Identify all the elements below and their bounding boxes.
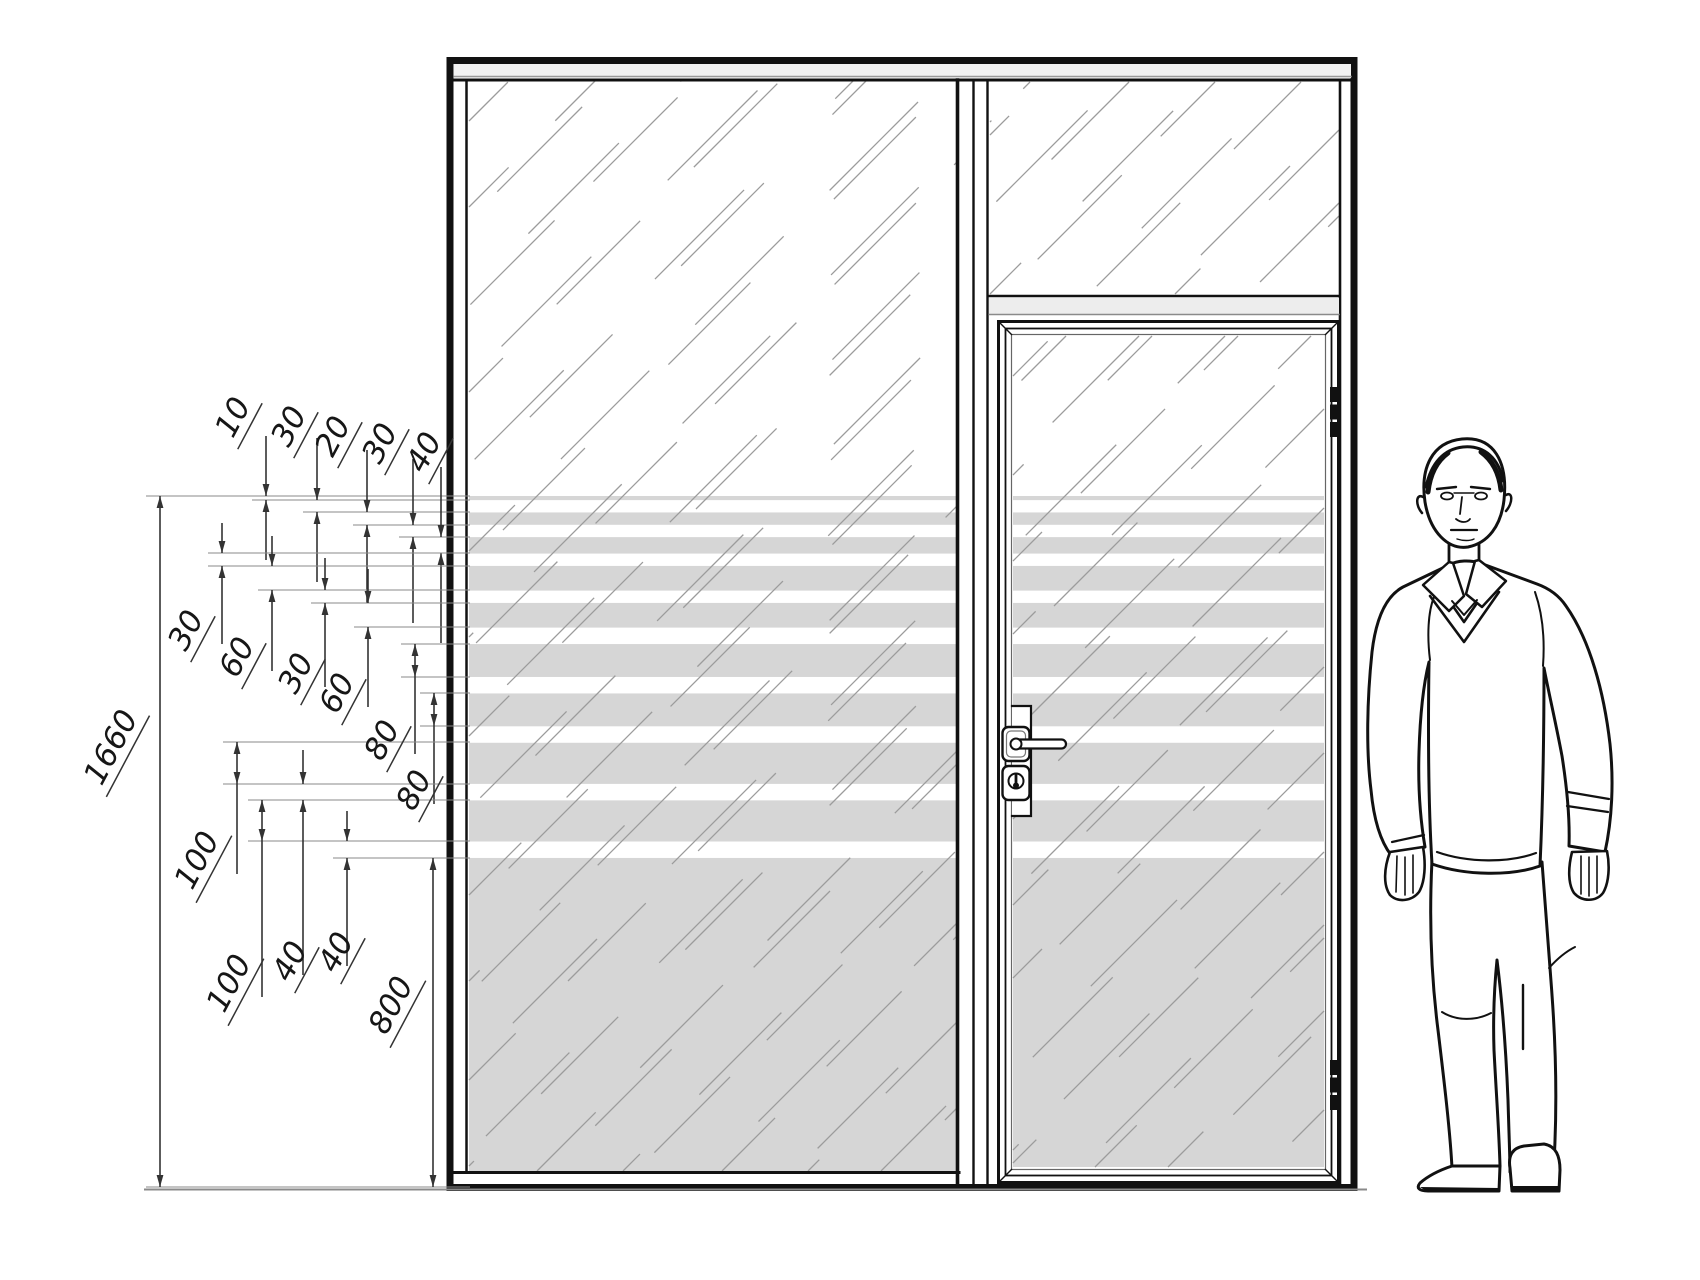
dimension-arrow	[431, 714, 438, 726]
glass-hatch-line	[469, 81, 939, 551]
figure-sweater	[1368, 561, 1612, 873]
drawing-canvas: 1660 10 30 20 30 40 30 60 30 60 80 80 10…	[0, 0, 1700, 1280]
glass-hatch-line	[469, 81, 866, 478]
dimension-arrow	[364, 500, 371, 512]
door-hinge-knuckle	[1330, 1060, 1339, 1075]
glass-hatch-line	[1003, 82, 1215, 294]
dimension-arrow	[300, 800, 307, 812]
frosted-film-stripe	[469, 537, 957, 553]
dimension-arrow	[412, 644, 419, 656]
dimension-arrow	[259, 800, 266, 812]
glass-hatch-line	[469, 81, 952, 564]
glass-hatch-line	[990, 82, 1116, 208]
dimension-label: 80	[389, 764, 439, 816]
glass-hatch-line	[469, 321, 957, 809]
dimension-arrow	[344, 858, 351, 870]
dimension-arrow	[234, 742, 241, 754]
door-handle-hub	[1011, 739, 1022, 750]
dimension-arrow	[365, 591, 372, 603]
dimension-arrow	[322, 603, 329, 615]
dimension-arrow	[314, 488, 321, 500]
glass-hatch-line	[1013, 336, 1324, 647]
dimension-arrow	[219, 566, 226, 578]
dimension-label-overall: 1660	[77, 704, 146, 791]
frosted-film-stripe	[1013, 603, 1324, 628]
glass-hatch-line	[469, 81, 522, 134]
glass-hatch-line	[469, 81, 595, 207]
dimension-arrow	[219, 541, 226, 553]
glass-hatch-line	[1076, 82, 1288, 294]
glass-hatch-line	[469, 81, 767, 379]
frosted-film-stripe	[469, 858, 957, 1171]
dimension-arrow	[263, 500, 270, 512]
glass-hatch-line	[469, 81, 780, 392]
glass-hatch-line	[1013, 336, 1053, 376]
glass-hatch-line	[1162, 117, 1339, 294]
dimension-arrow	[410, 513, 417, 525]
glass-hatch-line	[1013, 336, 1066, 389]
glass-hatch-line	[469, 81, 608, 220]
glass-hatch-line	[1261, 216, 1339, 294]
dimension-arrow	[431, 693, 438, 705]
dimension-arrow	[234, 772, 241, 784]
glass-hatch-line	[990, 82, 1030, 122]
dimension-arrow	[410, 537, 417, 549]
glass-hatch-line	[1175, 130, 1339, 294]
dimension-arrow	[259, 829, 266, 841]
glass-hatch-line	[990, 82, 1202, 294]
frosted-film-stripe	[1013, 566, 1324, 591]
glass-hatch-line	[1248, 203, 1339, 294]
glass-hatch-line	[469, 81, 853, 465]
glass-hatch-line	[1013, 336, 1139, 462]
dimension-arrow	[365, 627, 372, 639]
glass-hatch-line	[1013, 336, 1238, 561]
human-figure-for-scale	[1368, 439, 1612, 1191]
glass-hatch-line	[469, 81, 509, 121]
door-hinge-knuckle	[1330, 405, 1339, 420]
dimension-label: 30	[161, 604, 211, 656]
dimension-label: 10	[208, 391, 258, 443]
dimension-label: 30	[355, 417, 405, 469]
dimension-label: 30	[264, 400, 314, 452]
frosted-film-stripe	[1013, 800, 1324, 841]
dimension-label: 60	[312, 667, 362, 719]
frosted-film-stripe	[1013, 512, 1324, 524]
frosted-film-stripe	[1013, 644, 1324, 677]
dimension-arrow	[438, 525, 445, 537]
dimension-label: 80	[357, 714, 407, 766]
dimension-arrow	[364, 525, 371, 537]
frosted-film-stripe	[1013, 693, 1324, 726]
dimension-arrow	[430, 858, 437, 870]
glass-hatch-line	[469, 149, 957, 637]
frosted-film-stripe	[469, 512, 957, 524]
frosted-film-stripe	[1013, 496, 1324, 500]
frosted-film-stripe	[1013, 858, 1324, 1167]
dimension-arrow	[314, 512, 321, 524]
door-hinge-knuckle	[1330, 1078, 1339, 1093]
dimension-arrow	[344, 829, 351, 841]
transom-rail	[989, 298, 1339, 314]
dimension-arrow	[430, 1175, 437, 1187]
figure-knee-crease-right	[1549, 947, 1575, 968]
dimension-label: 60	[212, 631, 262, 683]
glass-hatch-line	[469, 81, 681, 293]
glass-hatch-line	[1013, 336, 1152, 475]
frosted-film-stripe	[469, 603, 957, 628]
door-lock-cylinder	[1013, 783, 1019, 789]
dimension-label: 30	[271, 647, 321, 699]
dimension-arrow	[322, 578, 329, 590]
dimension-label: 40	[311, 926, 361, 978]
dimension-labels: 1660 10 30 20 30 40 30 60 30 60 80 80 10…	[77, 391, 450, 1039]
frosted-film-stripe	[469, 496, 957, 500]
dimension-arrow	[438, 553, 445, 565]
glass-hatch-line	[990, 82, 1129, 221]
dimension-arrow	[263, 484, 270, 496]
glass-hatch-line	[990, 82, 1043, 135]
door-hinge-knuckle	[1330, 387, 1339, 402]
dimension-arrow	[300, 772, 307, 784]
door-hinge-knuckle	[1330, 1095, 1339, 1110]
figure-shoe-right	[1510, 1144, 1560, 1191]
glass-hatch-line	[1089, 82, 1301, 294]
dimension-arrow	[157, 496, 164, 508]
frosted-film-stripe	[1013, 537, 1324, 553]
dimension-arrow	[412, 665, 419, 677]
glass-hatch-line	[469, 81, 694, 306]
dimension-arrow	[269, 554, 276, 566]
door-hinge-knuckle	[1330, 422, 1339, 437]
dimension-arrow	[269, 590, 276, 602]
dimension-arrow	[157, 1175, 164, 1187]
elevation-drawing: 1660 10 30 20 30 40 30 60 30 60 80 80 10…	[0, 0, 1700, 1280]
glass-hatch-line	[1013, 581, 1324, 892]
figure-shoe-right-sole	[1510, 1186, 1560, 1191]
frosted-film-stripe	[469, 693, 957, 726]
dimension-label: 40	[265, 935, 315, 987]
